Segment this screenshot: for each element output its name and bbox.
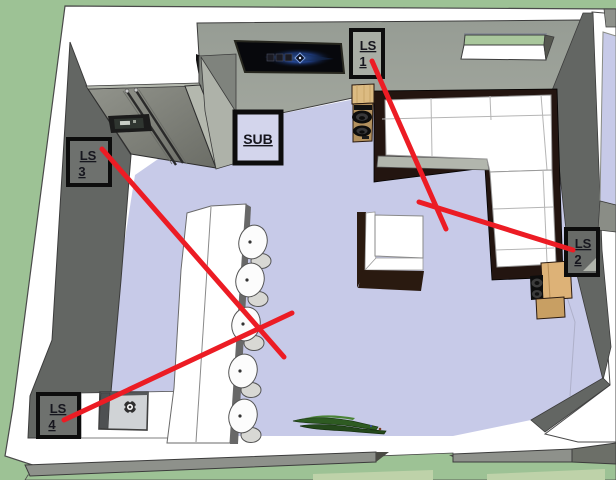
svg-text:LS: LS xyxy=(575,236,592,251)
svg-text:1: 1 xyxy=(359,54,366,69)
svg-text:2: 2 xyxy=(574,252,581,267)
svg-text:SUB: SUB xyxy=(243,131,273,147)
svg-text:4: 4 xyxy=(48,417,56,432)
svg-text:3: 3 xyxy=(78,164,85,179)
svg-text:LS: LS xyxy=(360,38,377,53)
svg-text:LS: LS xyxy=(50,401,67,416)
svg-text:LS: LS xyxy=(80,148,97,163)
